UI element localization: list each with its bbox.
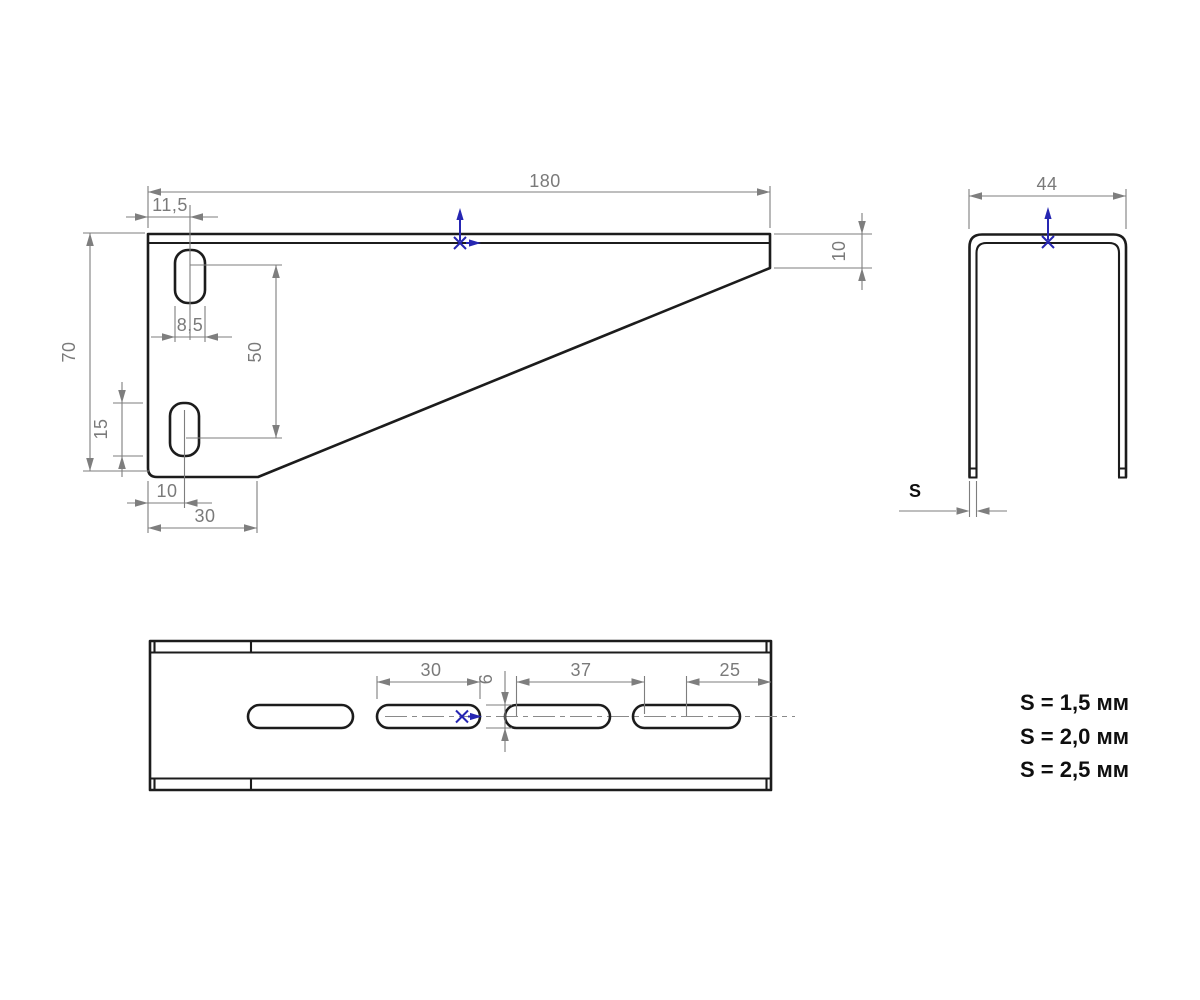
arrow (977, 507, 990, 515)
arrow (517, 678, 530, 686)
note-thickness-1: S = 1,5 мм (1020, 690, 1129, 715)
arrow (135, 213, 148, 221)
dim-slot-edge-offset: 10 (127, 481, 212, 507)
arrow (1113, 192, 1126, 200)
side-view-outline (148, 234, 770, 477)
dim-slot-spacing: 50 (245, 265, 280, 438)
dim-slot-width-label: 8,5 (177, 315, 204, 335)
slot-3 (505, 705, 610, 728)
dim-end-height-extensions (774, 234, 872, 268)
arrow (957, 507, 970, 515)
arrow (135, 499, 148, 507)
dim-slot-spacing-label: 50 (245, 341, 265, 362)
dim-channel-width-label: 44 (1036, 174, 1057, 194)
arrow (758, 678, 771, 686)
arrow (858, 221, 866, 234)
thickness-notes: S = 1,5 мм S = 2,0 мм S = 2,5 мм (1020, 690, 1129, 782)
dim-slot-length-extensions (113, 403, 143, 456)
arrow (377, 678, 390, 686)
top-view: 30 6 37 25 (150, 641, 795, 790)
origin-marker-icon (1042, 207, 1054, 248)
arrow (148, 524, 161, 532)
dim-thickness: S (899, 481, 1007, 517)
dim-slot-pitch: 37 (517, 660, 645, 716)
dim-top-slot-length-label: 30 (420, 660, 441, 680)
arrow (205, 333, 218, 341)
dim-end-height: 10 (774, 213, 872, 290)
arrow (118, 390, 126, 403)
dim-height-label: 70 (59, 341, 79, 362)
dim-top-slot-length: 30 (377, 660, 480, 699)
arrow (501, 692, 509, 705)
arrow (190, 213, 203, 221)
arrow (858, 268, 866, 281)
origin-y-arrow (1044, 207, 1051, 219)
front-view: 44 S (899, 174, 1127, 517)
front-view-outer (970, 235, 1127, 478)
arrow (632, 678, 645, 686)
arrow (687, 678, 700, 686)
dim-slot-length-label: 15 (91, 418, 111, 439)
dim-hole-offset: 11,5 (126, 195, 218, 221)
technical-drawing: 180 11,5 10 70 (0, 0, 1200, 1000)
dim-length-label: 180 (529, 171, 561, 191)
dim-thickness-extensions (970, 481, 977, 517)
drawing-page: 180 11,5 10 70 (0, 0, 1200, 1000)
arrow (162, 333, 175, 341)
side-view: 180 11,5 10 70 (59, 171, 872, 533)
dim-base-length-label: 30 (194, 506, 215, 526)
arrow (969, 192, 982, 200)
arrow (757, 188, 770, 196)
slot-1 (248, 705, 353, 728)
arrow (118, 456, 126, 469)
dim-end-height-label: 10 (829, 240, 849, 261)
dim-slot-length: 15 (91, 382, 143, 477)
dim-top-slot-width-label: 6 (476, 674, 496, 685)
arrow (501, 728, 509, 741)
dim-slot-edge-offset-label: 10 (156, 481, 177, 501)
dim-end-offset-label: 25 (719, 660, 740, 680)
front-view-inner (977, 243, 1120, 477)
origin-x-arrow (469, 239, 481, 246)
dim-thickness-label: S (909, 481, 921, 501)
dim-hole-offset-label: 11,5 (152, 195, 188, 215)
arrow (86, 458, 94, 471)
dim-end-offset: 25 (687, 660, 772, 716)
arrow (244, 524, 257, 532)
arrow (272, 265, 280, 278)
arrow (272, 425, 280, 438)
dim-slot-pitch-label: 37 (570, 660, 591, 680)
arrow (86, 233, 94, 246)
origin-y-arrow (456, 208, 463, 220)
note-thickness-3: S = 2,5 мм (1020, 757, 1129, 782)
dim-slot-width: 8,5 (151, 306, 232, 342)
note-thickness-2: S = 2,0 мм (1020, 724, 1129, 749)
leg-end-caps (969, 469, 1128, 478)
